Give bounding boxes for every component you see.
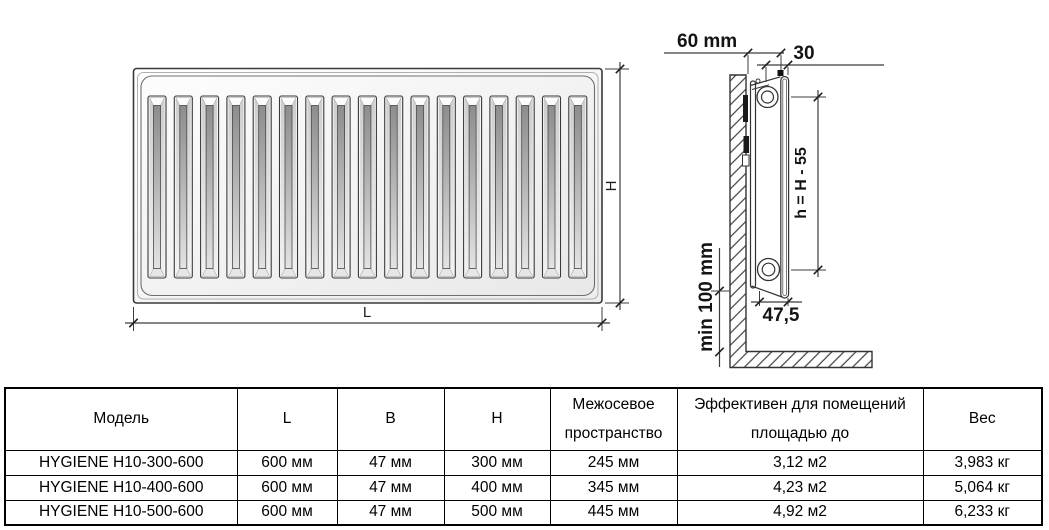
bracket-offset-label: 30 [793, 43, 814, 64]
floor-clearance-label: min 100 mm [696, 242, 717, 352]
dimension-bracket-offset: 30 [757, 43, 884, 82]
panel-front-skin [781, 77, 789, 299]
cell-height: 300 мм [444, 450, 550, 475]
col-header-effective-area: Эффективен для помещений площадью до [677, 388, 923, 450]
cell-height: 500 мм [444, 500, 550, 525]
col-header-spacing: Межосевое пространство [550, 388, 677, 450]
dimension-panel-height: h = H - 55 [791, 90, 826, 277]
cell-weight: 5,064 кг [923, 475, 1042, 500]
panel-height-label: h = H - 55 [793, 147, 810, 219]
cell-model: HYGIENE H10-400-600 [5, 475, 237, 500]
cell-weight: 6,233 кг [923, 500, 1042, 525]
cell-length: 600 мм [237, 450, 337, 475]
table-row: HYGIENE H10-400-600 600 мм 47 мм 400 мм … [5, 475, 1042, 500]
reference-marker [778, 70, 784, 76]
radiator-drawings: H L [0, 0, 1049, 385]
bracket-clip-top [743, 95, 748, 122]
dimension-length: L [125, 304, 610, 331]
panel-back-plate [751, 81, 756, 288]
col-header-width: B [337, 388, 444, 450]
cell-width: 47 мм [337, 450, 444, 475]
col-header-spacing-line2: пространство [551, 419, 677, 448]
depth-label: 47,5 [763, 305, 800, 326]
cell-width: 47 мм [337, 500, 444, 525]
cell-spacing: 445 мм [550, 500, 677, 525]
dimension-wall-offset: 60 mm [664, 31, 785, 74]
cell-width: 47 мм [337, 475, 444, 500]
col-header-height: H [444, 388, 550, 450]
cell-height: 400 мм [444, 475, 550, 500]
col-header-length: L [237, 388, 337, 450]
cell-spacing: 345 мм [550, 475, 677, 500]
col-header-weight: Вес [923, 388, 1042, 450]
radiator-side-view: 60 mm 30 h = H - 55 [664, 31, 884, 368]
col-header-effective-line2: площадью до [678, 419, 923, 448]
bracket-clip-mid [744, 136, 750, 153]
top-vent-detail [756, 79, 760, 83]
col-header-effective-line1: Эффективен для помещений [678, 390, 923, 419]
table-row: HYGIENE H10-300-600 600 мм 47 мм 300 мм … [5, 450, 1042, 475]
dimension-height: H [603, 62, 629, 310]
cell-length: 600 мм [237, 475, 337, 500]
cell-area: 4,92 м2 [677, 500, 923, 525]
col-header-spacing-line1: Межосевое [551, 390, 677, 419]
cell-spacing: 245 мм [550, 450, 677, 475]
dimension-floor-clearance: min 100 mm [696, 242, 730, 367]
cell-model: HYGIENE H10-300-600 [5, 450, 237, 475]
radiator-front-view: H L [125, 62, 629, 331]
bottom-taper-line [752, 286, 783, 297]
table-row: HYGIENE H10-500-600 600 мм 47 мм 500 мм … [5, 500, 1042, 525]
cell-model: HYGIENE H10-500-600 [5, 500, 237, 525]
spec-table: Модель L B H Межосевое пространство Эффе… [4, 387, 1043, 526]
height-dimension-label: H [603, 181, 620, 192]
page: H L [0, 0, 1049, 530]
pipe-connection-bottom-inner [762, 263, 775, 276]
radiator-slats [148, 96, 587, 278]
wall-offset-label: 60 mm [677, 31, 737, 52]
cell-area: 4,23 м2 [677, 475, 923, 500]
cell-area: 3,12 м2 [677, 450, 923, 475]
table-header-row: Модель L B H Межосевое пространство Эффе… [5, 388, 1042, 450]
dimension-depth: 47,5 [751, 291, 802, 326]
bracket-plate [743, 155, 750, 166]
cell-length: 600 мм [237, 500, 337, 525]
pipe-connection-top-inner [762, 91, 774, 103]
length-dimension-label: L [363, 304, 371, 321]
cell-weight: 3,983 кг [923, 450, 1042, 475]
col-header-model: Модель [5, 388, 237, 450]
